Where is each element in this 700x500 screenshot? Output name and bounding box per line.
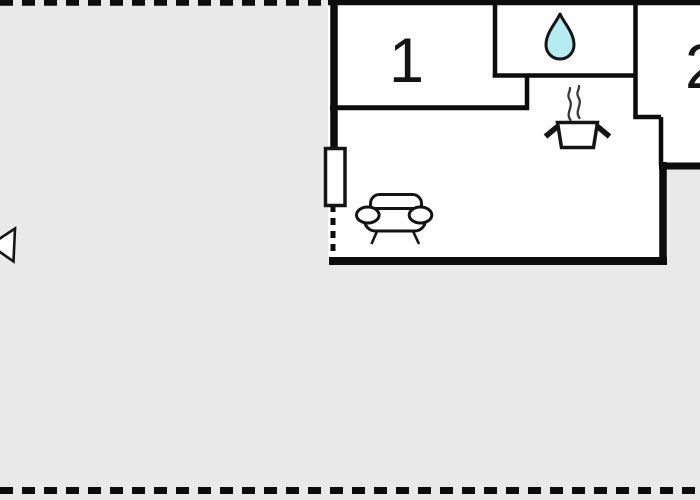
pot-body <box>558 123 598 148</box>
room-2-label: 2 <box>685 32 700 102</box>
room-1-label: 1 <box>389 26 424 96</box>
sofa-armrest-right <box>409 207 432 223</box>
floor-plan-canvas: 1 2 <box>0 0 700 500</box>
floor-plan-svg: 1 2 <box>0 0 700 500</box>
window-symbol <box>326 149 346 206</box>
sofa-armrest-left <box>357 207 380 223</box>
